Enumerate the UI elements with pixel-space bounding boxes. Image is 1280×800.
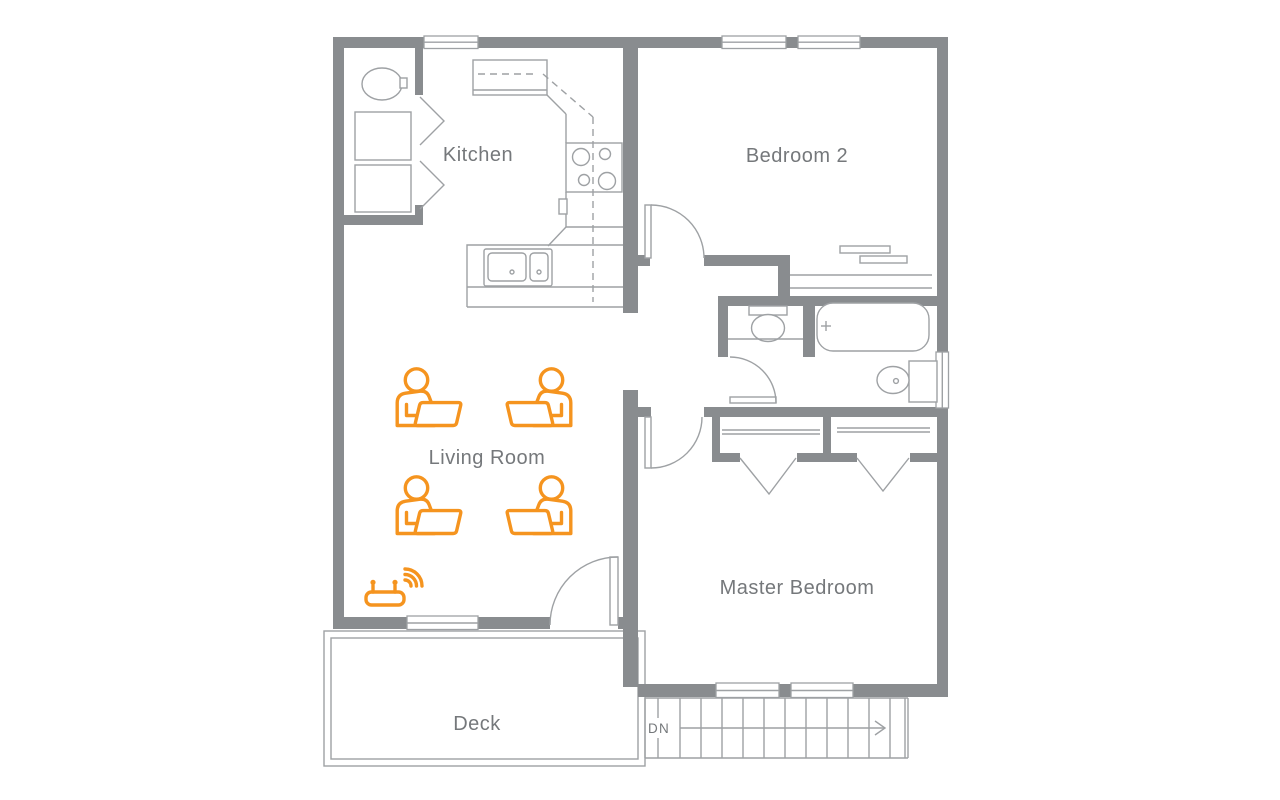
window-master-right: [791, 683, 853, 698]
sliding-door-panel: [840, 246, 890, 253]
deck-outline: [324, 631, 645, 766]
cooktop: [566, 143, 622, 192]
wall-bath-divider: [803, 306, 815, 357]
stairs: DN: [645, 698, 908, 758]
bedroom2-door: [645, 205, 704, 258]
dryer: [355, 165, 411, 212]
counter-corner: [548, 227, 566, 246]
kitchen-fixtures: [467, 60, 623, 307]
wall-closet-front: [797, 453, 857, 462]
wall-hall-bedroom2: [704, 255, 790, 266]
wall-bath-left: [718, 306, 728, 357]
window-living: [407, 616, 478, 630]
wall-hall-master: [638, 407, 651, 417]
toilet-tank: [749, 306, 787, 315]
kitchen-label: Kitchen: [443, 144, 513, 166]
window-bedroom2-left: [722, 36, 786, 49]
dishwasher-handle: [559, 199, 567, 214]
wall-living-bottom: [478, 617, 550, 629]
window-bedroom2-right: [798, 36, 860, 49]
vanity: [909, 361, 937, 402]
floor-plan: DN Kitchen Bedroom 2 Living Room Master …: [0, 0, 1280, 800]
laundry-tub: [362, 68, 402, 100]
wall-closet-front: [910, 453, 937, 462]
window-kitchen: [424, 36, 478, 49]
person-laptop-icon: [397, 369, 461, 426]
washer: [355, 112, 411, 160]
laundry-tub-faucet: [400, 78, 407, 88]
window-master-left: [716, 683, 779, 698]
deck-label: Deck: [453, 713, 501, 735]
wall-hall-master: [704, 407, 948, 417]
person-laptop-icon: [397, 477, 461, 534]
wall-living-bottom: [618, 617, 623, 629]
wall-laundry-jamb: [415, 48, 423, 95]
living-room-label: Living Room: [429, 447, 546, 469]
floor-plan-canvas: DN Kitchen Bedroom 2 Living Room Master …: [0, 0, 1280, 800]
bathtub: [817, 303, 929, 351]
master-bedroom-label: Master Bedroom: [720, 577, 875, 599]
bathroom-door: [730, 357, 776, 403]
person-laptop-icon-mirrored: [507, 477, 571, 534]
wall-center-upper: [623, 37, 638, 313]
wall-laundry-bottom: [333, 215, 420, 225]
occupant-icons: [366, 369, 571, 605]
deck-door: [550, 557, 618, 625]
master-bedroom-door: [645, 417, 702, 468]
bifold-door: [420, 97, 444, 145]
wifi-router-icon: [366, 569, 422, 605]
bathroom-sink: [877, 367, 909, 394]
wall-closet-front: [712, 453, 740, 462]
bifold-door: [857, 458, 909, 491]
window-bathroom: [936, 352, 949, 408]
counter-corner: [547, 95, 566, 114]
stairs-dn-label: DN: [648, 721, 670, 736]
wall-living-bottom: [333, 617, 408, 629]
toilet: [752, 315, 785, 342]
bathroom-fixtures: [728, 303, 937, 402]
laundry-fixtures: [355, 68, 444, 212]
wall-left: [333, 37, 344, 629]
sliding-door-panel: [860, 256, 907, 263]
bedroom2-closet: [790, 246, 932, 288]
person-laptop-icon-mirrored: [507, 369, 571, 426]
bedroom2-label: Bedroom 2: [746, 145, 848, 167]
bifold-door: [420, 161, 444, 209]
wall-center-lower: [623, 390, 638, 687]
bifold-door: [740, 458, 796, 494]
